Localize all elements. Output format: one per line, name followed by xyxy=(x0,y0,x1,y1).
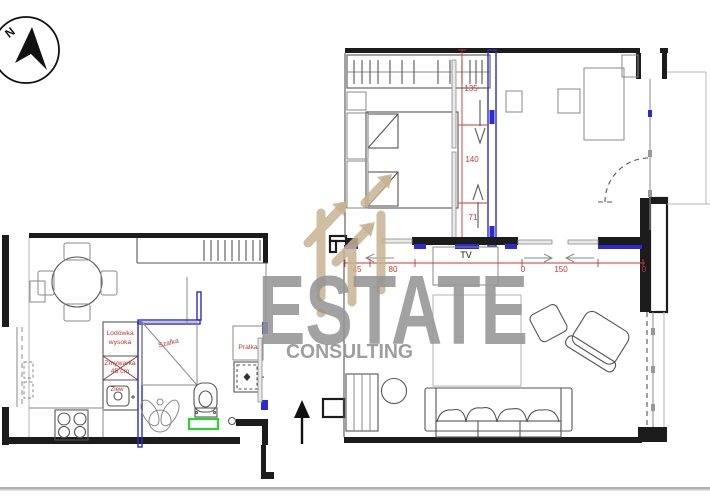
living-window xyxy=(647,312,664,427)
sliding-panel xyxy=(568,240,598,244)
wardrobe-2 xyxy=(584,68,624,140)
washbasin-icon xyxy=(137,397,183,432)
dining-table xyxy=(38,243,117,321)
sofa-pillow xyxy=(437,410,466,423)
bottom-separator xyxy=(0,487,710,491)
dishwasher-label-line2: 45 cm xyxy=(111,368,130,375)
washer-label: Pralka xyxy=(238,344,257,351)
side-table xyxy=(558,89,580,113)
toilet-icon xyxy=(194,383,217,417)
hanger-icons xyxy=(204,240,260,261)
sofa-pillow xyxy=(527,410,559,422)
kitchen-counter xyxy=(29,408,103,440)
dimension-140: 140 xyxy=(465,155,479,164)
dimension-71: 71 xyxy=(469,213,478,222)
sideboard xyxy=(346,374,378,431)
door-swing-arc xyxy=(605,158,649,202)
slide-direction-arrows xyxy=(473,100,485,228)
bedroom: 135 140 71 xyxy=(347,50,496,246)
dimension-135: 135 xyxy=(464,84,478,93)
bedroom-dimensions: 135 140 71 xyxy=(458,50,487,243)
armchair xyxy=(564,307,635,374)
sofa xyxy=(425,388,572,437)
fridge-label-line1: Lodówka xyxy=(106,330,133,337)
bath-mat xyxy=(189,419,218,429)
tall-cabinet: Szafka xyxy=(142,322,197,385)
dimension-0b: 0 xyxy=(642,265,647,274)
entrance-arrow-icon xyxy=(294,400,310,444)
dimension-150: 150 xyxy=(554,265,568,274)
sliding-panel xyxy=(382,239,412,243)
neighbour-outline xyxy=(667,72,710,204)
nightstand xyxy=(347,92,366,110)
dishwasher-label-line1: Zmywarka xyxy=(104,360,136,367)
entry-closet xyxy=(137,238,268,263)
pouf xyxy=(528,303,569,344)
watermark-tagline: CONSULTING xyxy=(286,341,413,363)
compass: N xyxy=(0,17,59,83)
left-window xyxy=(17,327,33,407)
sliding-panel xyxy=(452,60,456,148)
floorplan-page: Lodówka wysoka Zmywarka 45 cm Zlew xyxy=(0,0,710,500)
floor-drain-icon xyxy=(229,418,236,425)
sofa-pillow xyxy=(466,408,497,422)
cabinet-label: Szafka xyxy=(158,338,180,350)
stove-icon xyxy=(55,410,88,440)
washer-dot-icon xyxy=(244,373,251,381)
bathroom: Szafka Pralka xyxy=(137,322,264,432)
kitchen-units: Lodówka wysoka Zmywarka 45 cm Zlew xyxy=(103,322,138,410)
plant-icon xyxy=(382,379,407,404)
sofa-pillow xyxy=(497,409,527,422)
left-unit-plan: Lodówka wysoka Zmywarka 45 cm Zlew xyxy=(2,233,274,479)
floorplan-drawing: Lodówka wysoka Zmywarka 45 cm Zlew xyxy=(0,0,710,500)
side-table xyxy=(506,91,522,112)
sliding-panel xyxy=(518,240,552,244)
bedroom-blue-partition xyxy=(488,50,496,246)
nightstand xyxy=(347,113,368,159)
study-room xyxy=(506,68,624,140)
chair xyxy=(101,271,117,295)
fridge-label-line2: wysoka xyxy=(108,339,132,346)
sliding-panel xyxy=(452,152,456,238)
